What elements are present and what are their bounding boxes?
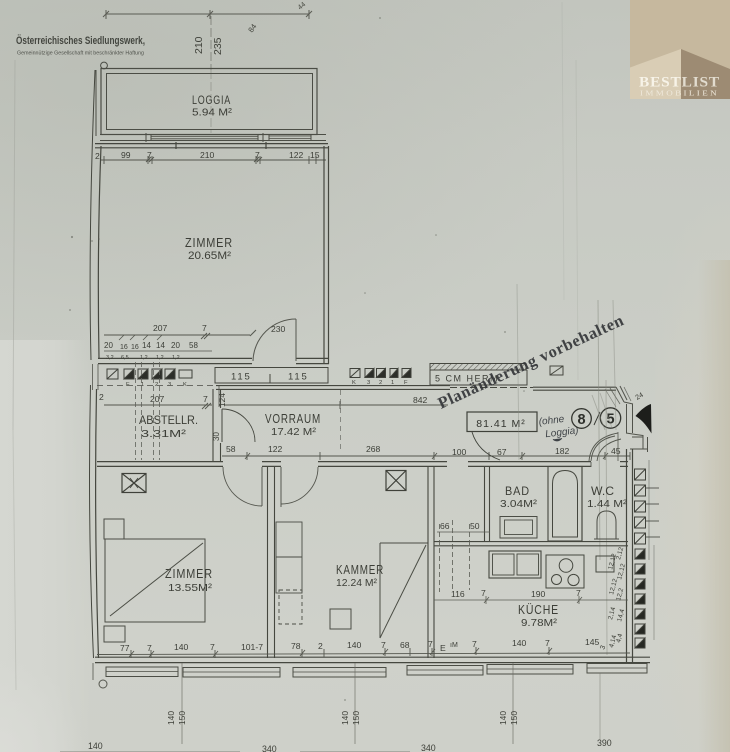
svg-text:7: 7	[481, 588, 486, 598]
svg-text:12.24 M²: 12.24 M²	[336, 577, 377, 589]
svg-text:12,2: 12,2	[615, 587, 625, 601]
svg-text:150: 150	[509, 711, 519, 725]
svg-text:140: 140	[174, 642, 189, 652]
svg-text:1,2: 1,2	[172, 355, 180, 361]
svg-text:3.31M²: 3.31M²	[141, 428, 187, 440]
svg-text:13.55M²: 13.55M²	[168, 582, 213, 594]
svg-text:20: 20	[171, 341, 180, 350]
svg-text:3,2: 3,2	[106, 355, 114, 361]
svg-text:3.04M²: 3.04M²	[500, 498, 538, 510]
svg-text:K: K	[183, 382, 187, 388]
svg-text:7: 7	[210, 642, 215, 652]
svg-text:ZIMMER: ZIMMER	[165, 567, 213, 581]
svg-text:140: 140	[347, 640, 362, 650]
svg-text:IMMOBILIEN: IMMOBILIEN	[640, 89, 719, 98]
svg-text:ZIMMER: ZIMMER	[185, 235, 233, 250]
svg-text:2: 2	[95, 151, 100, 161]
svg-text:115: 115	[288, 372, 309, 383]
svg-text:77: 77	[120, 643, 130, 653]
svg-text:235: 235	[212, 37, 224, 55]
svg-text:20: 20	[104, 341, 113, 350]
svg-text:E: E	[440, 643, 446, 653]
svg-text:4,14: 4,14	[608, 634, 618, 648]
svg-text:50: 50	[470, 521, 480, 531]
svg-text:30: 30	[212, 432, 221, 441]
svg-text:7: 7	[202, 323, 207, 333]
svg-text:45: 45	[611, 446, 621, 456]
svg-text:122: 122	[268, 444, 283, 454]
svg-text:5.94 M²: 5.94 M²	[192, 107, 233, 119]
svg-text:115: 115	[231, 372, 252, 383]
svg-text:3: 3	[168, 382, 171, 388]
svg-text:268: 268	[366, 444, 381, 454]
svg-text:16: 16	[131, 344, 139, 351]
svg-text:190: 190	[531, 589, 546, 599]
svg-text:Österreichisches Siedlungswerk: Österreichisches Siedlungswerk,	[16, 34, 145, 47]
svg-text:7: 7	[203, 394, 208, 404]
svg-text:116: 116	[451, 589, 465, 599]
svg-text:99: 99	[121, 150, 131, 160]
svg-text:KÜCHE: KÜCHE	[518, 603, 559, 617]
svg-text:1,2: 1,2	[156, 355, 164, 361]
svg-text:15: 15	[310, 150, 320, 160]
svg-text:390: 390	[597, 738, 612, 748]
svg-text:3: 3	[599, 645, 607, 651]
svg-text:ıM: ıM	[450, 642, 458, 649]
svg-text:101-7: 101-7	[241, 642, 263, 652]
svg-text:12,12: 12,12	[607, 553, 618, 571]
svg-text:44: 44	[297, 1, 308, 11]
svg-text:KAMMER: KAMMER	[336, 563, 384, 577]
svg-text:14,4: 14,4	[616, 608, 626, 622]
svg-text:7: 7	[147, 150, 152, 160]
svg-text:230: 230	[271, 324, 286, 334]
svg-text:68: 68	[400, 640, 410, 650]
svg-text:6,5: 6,5	[121, 355, 129, 361]
svg-text:2: 2	[155, 382, 158, 388]
svg-text:210: 210	[200, 150, 215, 160]
svg-text:150: 150	[177, 711, 187, 725]
svg-text:150: 150	[351, 711, 361, 725]
svg-text:1.44 M²: 1.44 M²	[587, 498, 628, 510]
svg-text:9.78M²: 9.78M²	[521, 617, 558, 629]
svg-text:140: 140	[340, 711, 350, 725]
svg-text:5: 5	[606, 412, 614, 428]
svg-text:24: 24	[635, 392, 645, 402]
svg-text:140: 140	[88, 741, 103, 751]
svg-text:67: 67	[497, 447, 507, 457]
svg-text:20.65M²: 20.65M²	[188, 250, 231, 262]
svg-text:182: 182	[555, 446, 570, 456]
svg-text:VORRAUM: VORRAUM	[265, 412, 321, 426]
svg-text:842: 842	[413, 395, 428, 405]
svg-text:Gemeinnützige Gesellschaft mit: Gemeinnützige Gesellschaft mit beschränk…	[17, 51, 144, 57]
svg-text:207: 207	[153, 323, 168, 333]
svg-text:8: 8	[577, 412, 585, 428]
svg-text:58: 58	[189, 341, 198, 350]
svg-text:ABSTELLR.: ABSTELLR.	[139, 415, 198, 427]
svg-text:340: 340	[421, 743, 436, 752]
svg-text:14: 14	[156, 341, 165, 350]
svg-text:W.C: W.C	[591, 486, 614, 498]
svg-text:1,2: 1,2	[140, 355, 148, 361]
svg-text:140: 140	[166, 711, 176, 725]
svg-text:LOGGIA: LOGGIA	[192, 93, 231, 107]
svg-text:16: 16	[120, 344, 128, 351]
svg-text:210: 210	[193, 36, 205, 54]
svg-text:BAD: BAD	[505, 484, 530, 498]
svg-text:2: 2	[318, 641, 323, 651]
svg-text:122: 122	[289, 150, 304, 160]
svg-text:66: 66	[440, 521, 450, 531]
svg-text:340: 340	[262, 744, 277, 752]
svg-text:207: 207	[150, 394, 165, 404]
svg-text:124: 124	[217, 393, 227, 407]
svg-text:Planänderung vorbehalten: Planänderung vorbehalten	[435, 310, 627, 412]
svg-text:17.42 M²: 17.42 M²	[271, 426, 317, 438]
svg-text:7: 7	[428, 639, 433, 649]
svg-text:Loggia): Loggia)	[545, 425, 579, 440]
svg-text:140: 140	[512, 638, 527, 648]
svg-text:7: 7	[545, 638, 550, 648]
svg-text:2: 2	[99, 392, 104, 402]
svg-text:140: 140	[498, 711, 508, 725]
svg-text:(ohne: (ohne	[538, 414, 565, 428]
svg-text:F: F	[126, 382, 130, 388]
svg-text:7: 7	[255, 150, 260, 160]
svg-text:145: 145	[585, 637, 600, 647]
svg-text:100: 100	[452, 447, 467, 457]
svg-text:84: 84	[246, 22, 258, 34]
svg-text:12,12: 12,12	[616, 563, 627, 581]
svg-text:7: 7	[576, 588, 581, 598]
svg-text:78: 78	[291, 641, 301, 651]
svg-text:14: 14	[142, 341, 151, 350]
svg-text:58: 58	[226, 444, 236, 454]
